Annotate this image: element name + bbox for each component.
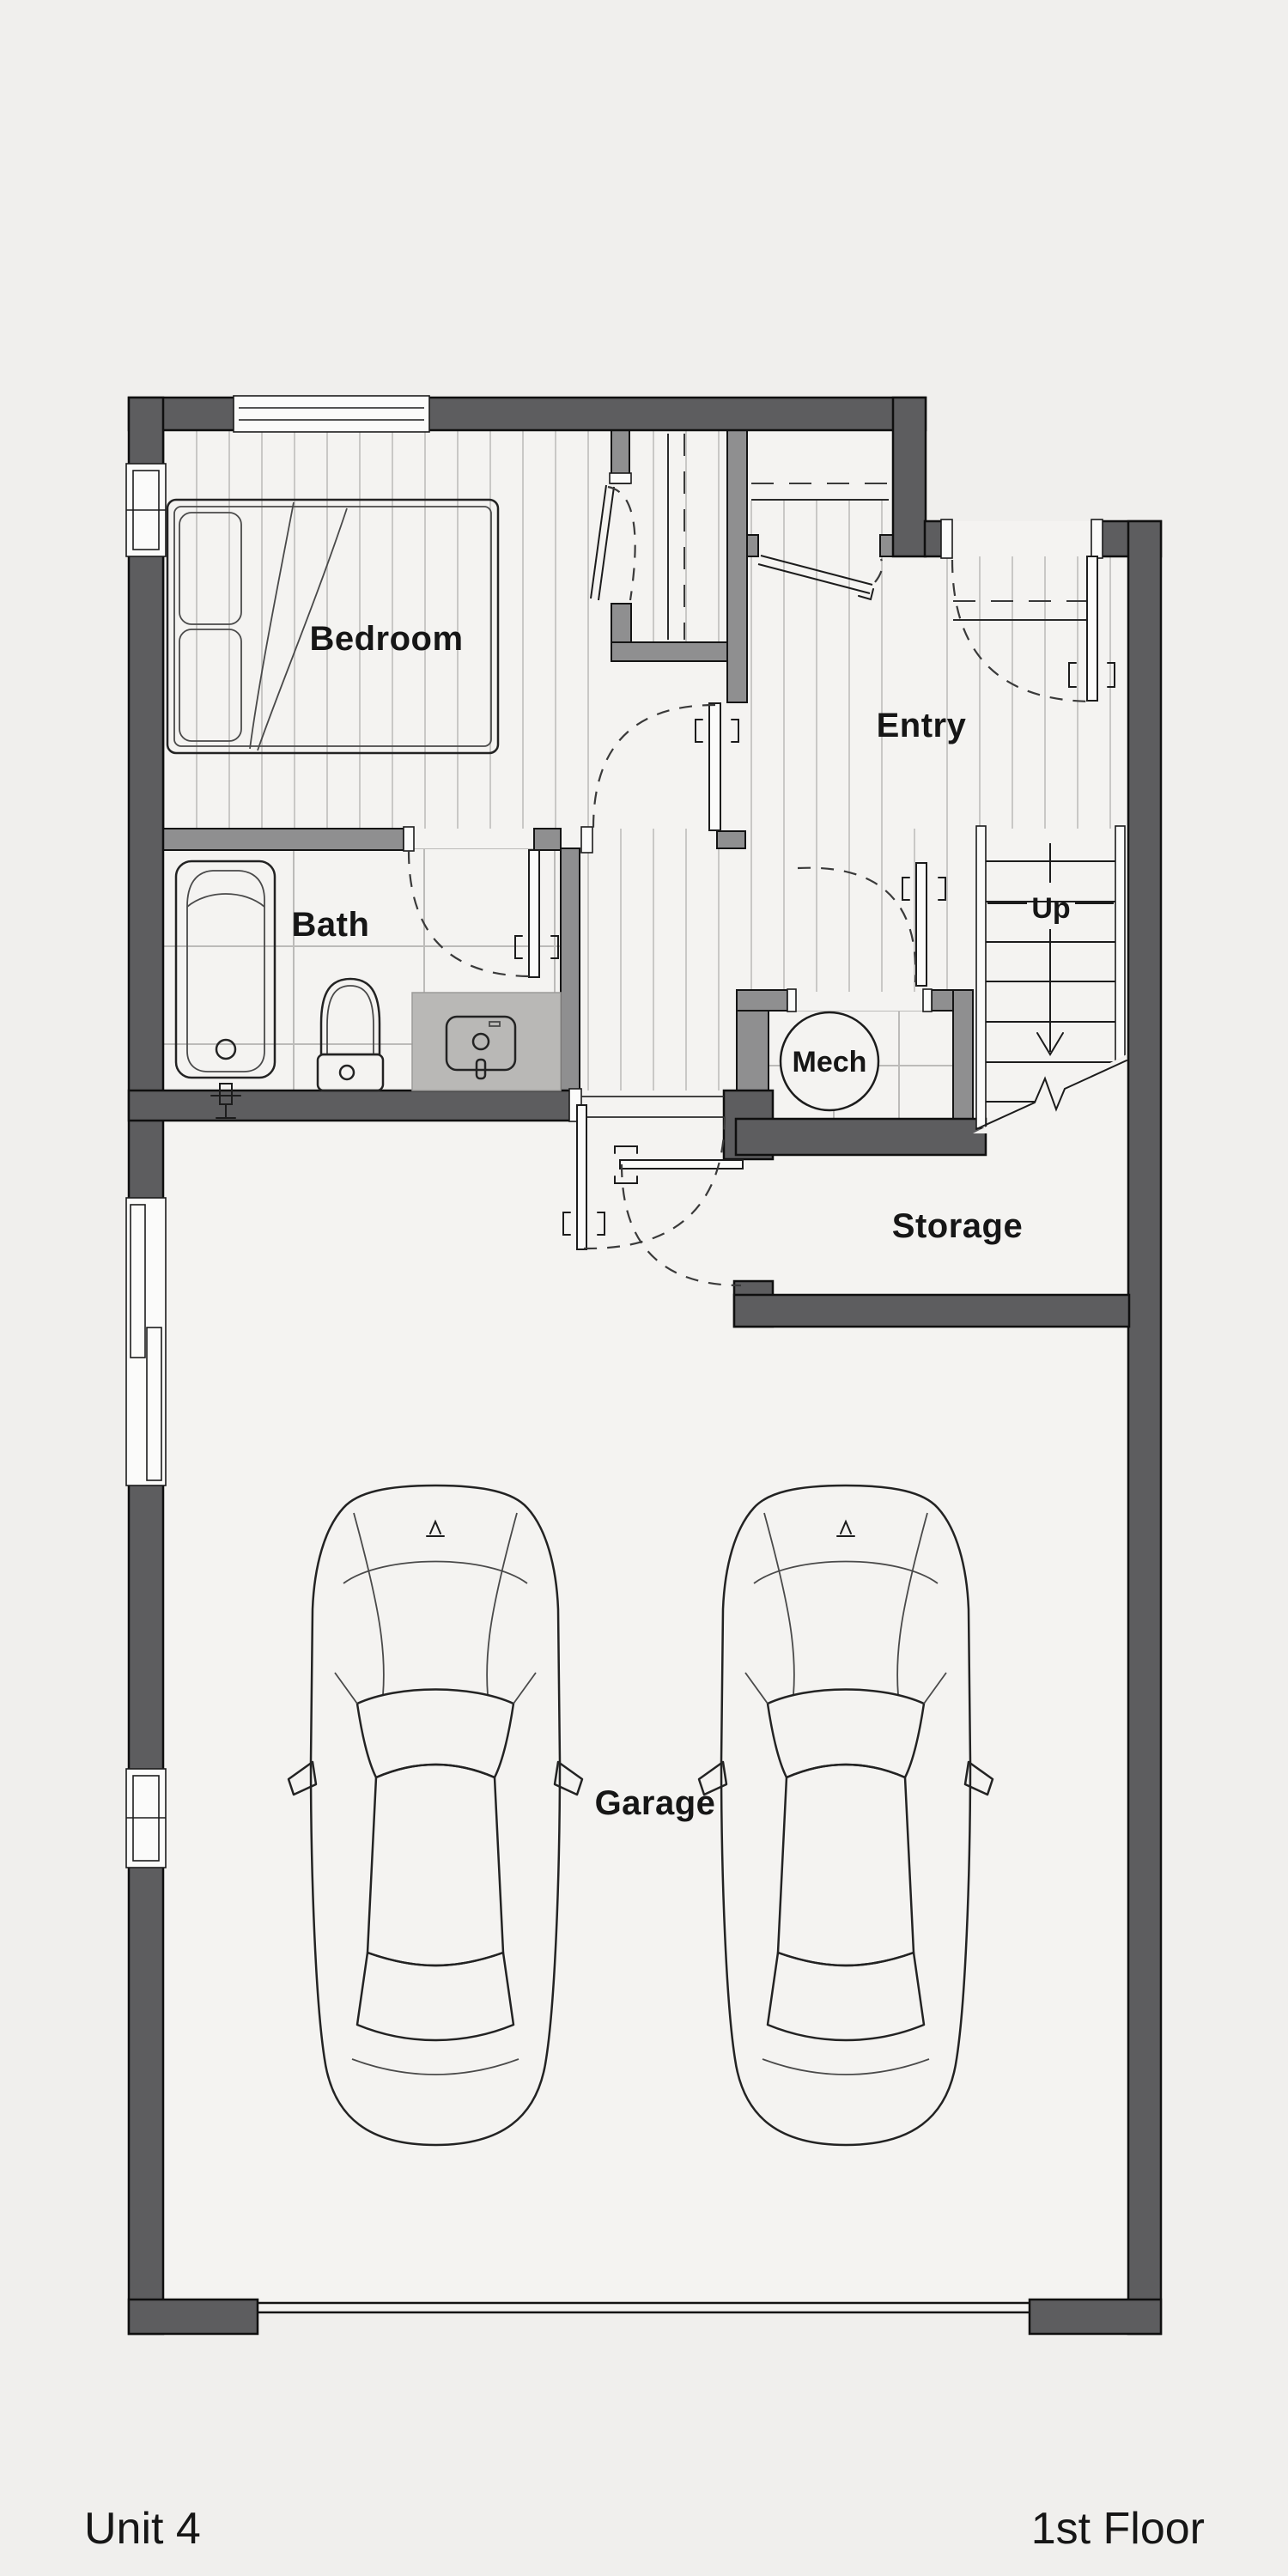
closet-bottom-wall: [611, 642, 727, 661]
floor-level-label: 1st Floor: [1031, 2504, 1205, 2554]
front-door-jamb-left: [941, 519, 952, 558]
bath-south-wall: [129, 1091, 575, 1121]
storage-north-wall: [736, 1119, 986, 1155]
bath-door-leaf: [529, 850, 539, 977]
hall-door-end-cap: [717, 831, 745, 848]
hall-door-leaf: [709, 703, 720, 830]
garage-label: Garage: [595, 1784, 716, 1822]
coat-closet-stub-left: [747, 535, 758, 556]
sheet-labels: Unit 4 1st Floor: [84, 2504, 1205, 2554]
entry-hall-wall: [727, 430, 747, 702]
mech-door-jamb-left: [787, 989, 796, 1012]
bedroom-north-window: [234, 396, 429, 432]
bedroom-label: Bedroom: [309, 620, 463, 658]
unit-label: Unit 4: [84, 2504, 201, 2554]
front-door-leaf: [1087, 556, 1097, 701]
stairs-up-label: Up: [1031, 892, 1070, 925]
mech-north-wall-left: [737, 990, 787, 1011]
hall-door-jamb-left: [581, 827, 592, 853]
garage-hall-door-leaf-b: [620, 1160, 743, 1169]
bedroom-south-wall-east: [534, 829, 561, 850]
entry-label: Entry: [877, 707, 967, 744]
front-door-jamb-right: [1091, 519, 1103, 558]
stair-rail-west: [976, 826, 986, 1128]
mech-east-wall: [953, 990, 973, 1121]
bedroom-south-wall-west: [163, 829, 404, 850]
mech-door-jamb-right: [923, 989, 932, 1012]
south-pier-west: [129, 2300, 258, 2334]
bath-east-wall: [561, 848, 580, 1091]
storage-label: Storage: [892, 1207, 1023, 1245]
mech-label: Mech: [793, 1046, 867, 1078]
east-wall: [1128, 521, 1161, 2334]
exterior-below-garage-door: [258, 2313, 1030, 2336]
vanity: [412, 993, 561, 1091]
entry-north-step-wall: [893, 398, 926, 556]
bedroom-door-jamb-top: [610, 473, 631, 483]
garage-west-window-tall: [126, 1198, 166, 1485]
vanity-counter: [412, 993, 561, 1091]
bath-label: Bath: [292, 906, 370, 944]
exterior-notch: [925, 396, 1163, 521]
garage-hall-door-leaf-a: [577, 1105, 586, 1249]
bedroom-west-window: [126, 464, 166, 556]
coat-closet-stub-right: [880, 535, 893, 556]
mech-equipment: Mech: [781, 1012, 878, 1110]
storage-south-wall: [734, 1295, 1129, 1327]
garage-west-window-small: [126, 1769, 166, 1868]
bath-door-jamb: [404, 827, 414, 851]
mech-door-leaf: [916, 863, 927, 986]
floor-plan: Up Mech: [0, 0, 1288, 2576]
south-pier-east: [1030, 2300, 1161, 2334]
